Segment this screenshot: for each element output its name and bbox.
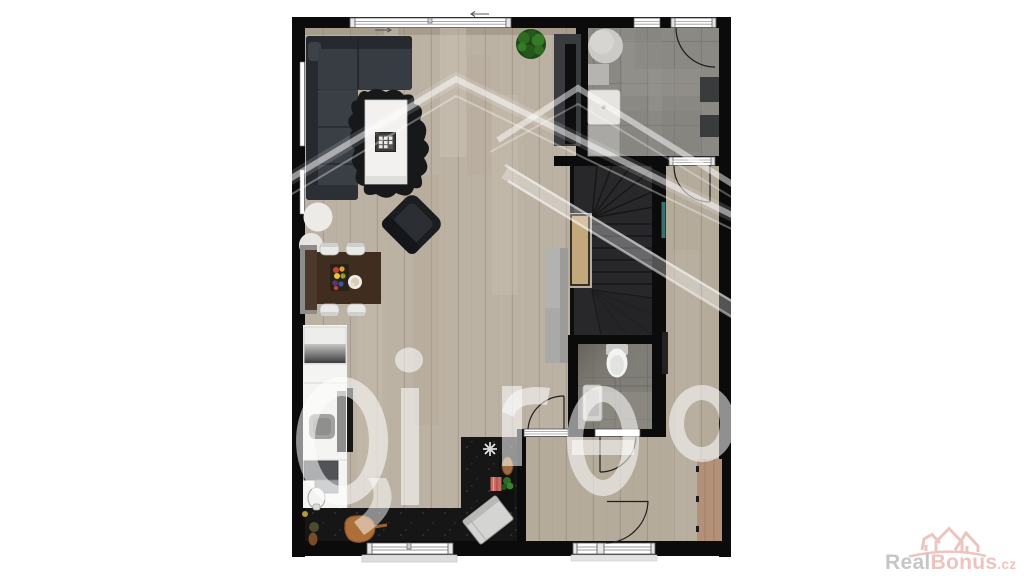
svg-text:RealBonus.cz: RealBonus.cz: [885, 551, 1016, 574]
